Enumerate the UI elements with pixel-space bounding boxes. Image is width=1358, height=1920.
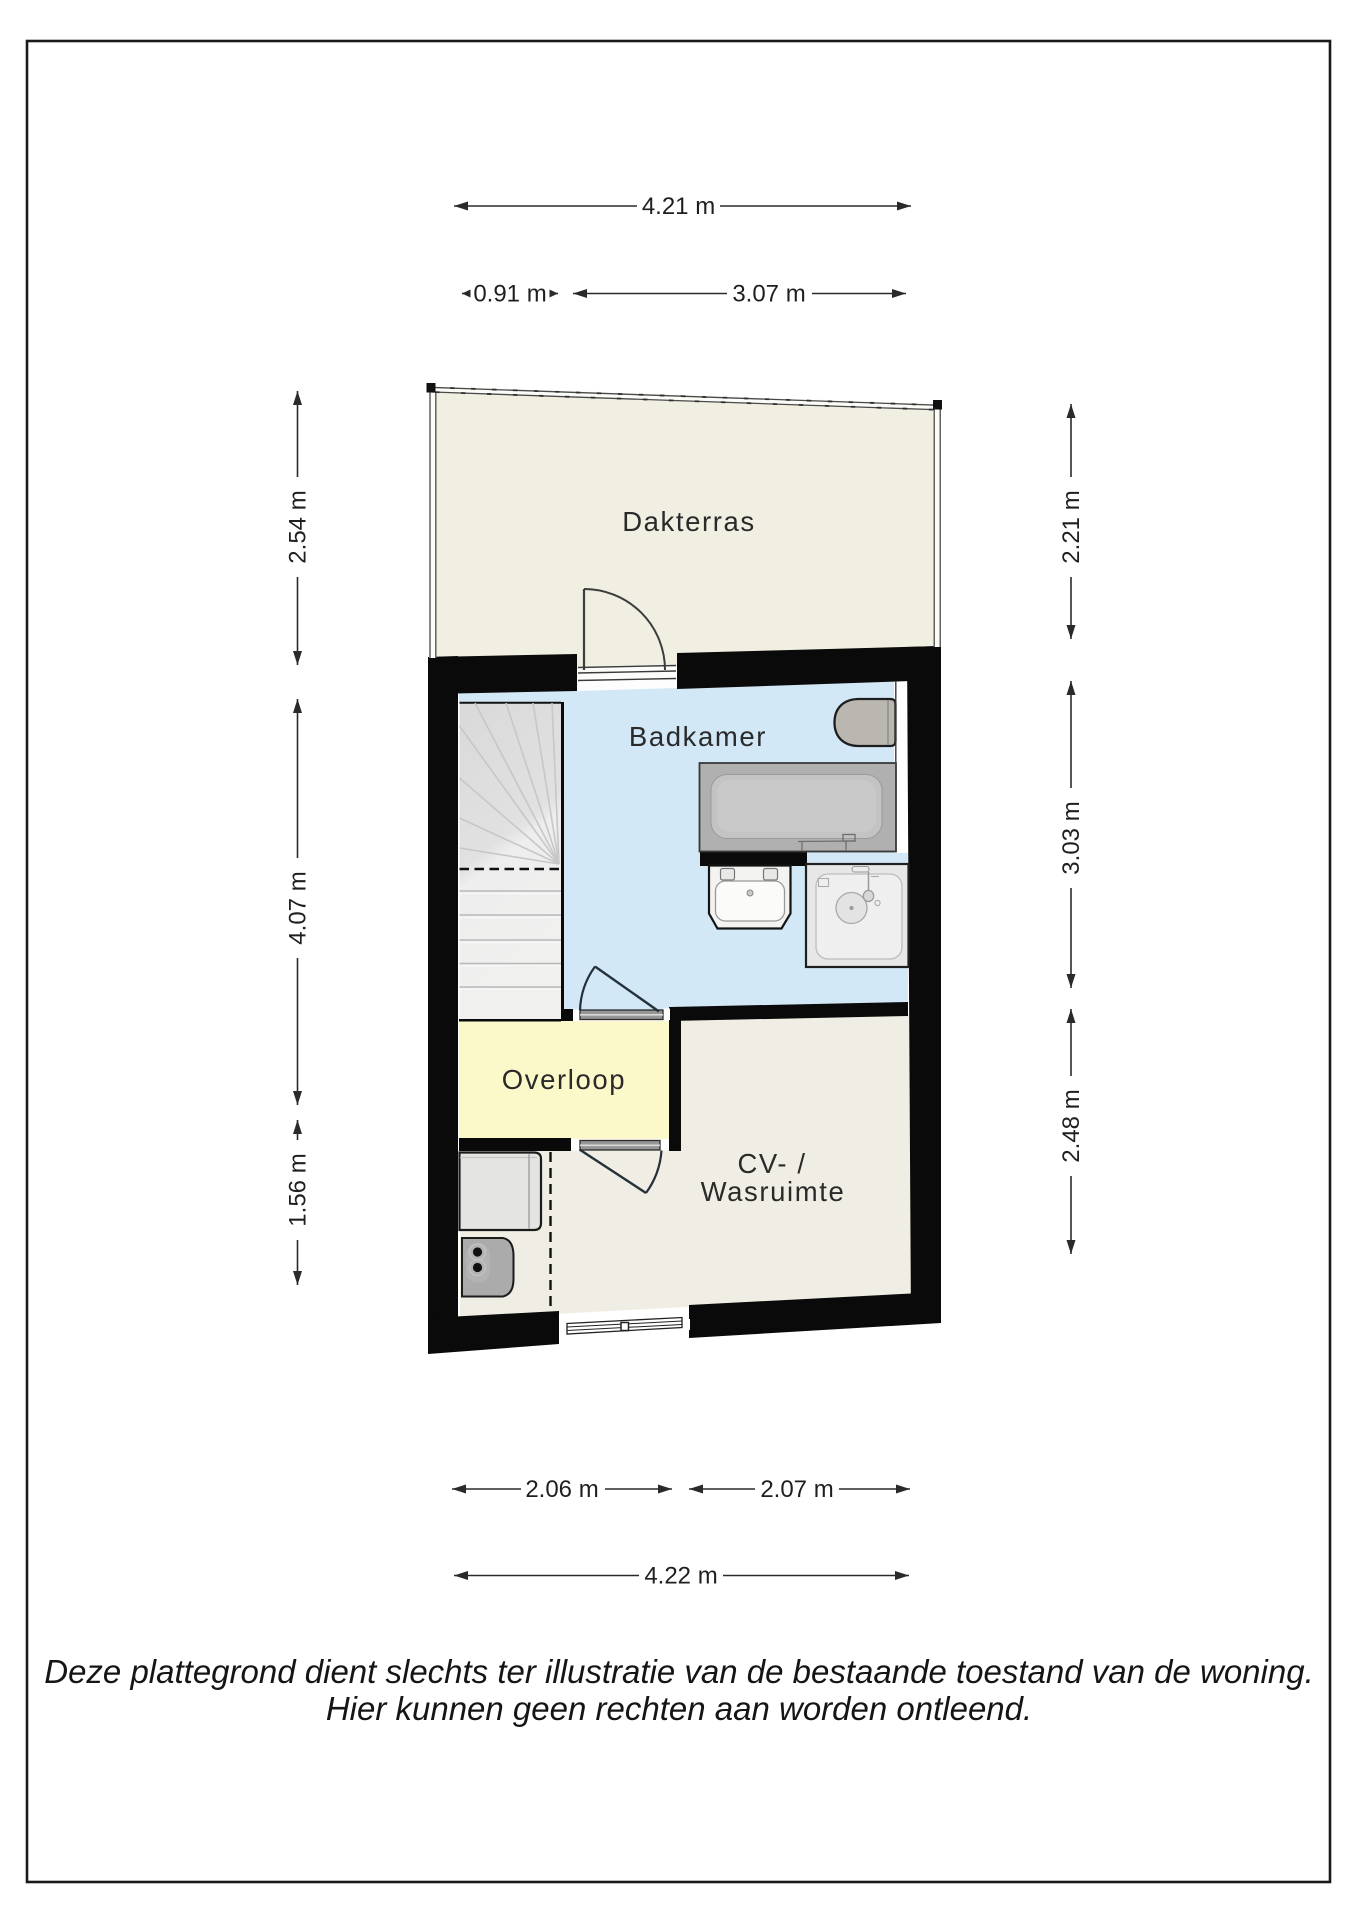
- svg-text:Overloop: Overloop: [502, 1064, 626, 1095]
- svg-text:Badkamer: Badkamer: [629, 721, 767, 752]
- svg-text:1.56 m: 1.56 m: [285, 1153, 312, 1226]
- svg-text:2.21 m: 2.21 m: [1058, 490, 1085, 563]
- svg-text:CV- /: CV- /: [737, 1148, 806, 1179]
- svg-text:Deze plattegrond dient slechts: Deze plattegrond dient slechts ter illus…: [44, 1653, 1314, 1690]
- svg-text:Wasruimte: Wasruimte: [701, 1176, 846, 1207]
- svg-text:2.06 m: 2.06 m: [525, 1476, 598, 1503]
- svg-text:Hier kunnen geen rechten aan w: Hier kunnen geen rechten aan worden ontl…: [326, 1690, 1032, 1727]
- svg-text:4.22 m: 4.22 m: [644, 1563, 717, 1590]
- svg-text:3.07 m: 3.07 m: [732, 281, 805, 308]
- svg-text:2.07 m: 2.07 m: [760, 1476, 833, 1503]
- svg-text:Dakterras: Dakterras: [622, 506, 756, 537]
- svg-text:0.91 m: 0.91 m: [473, 281, 546, 308]
- svg-text:4.21 m: 4.21 m: [642, 193, 715, 220]
- svg-text:2.48 m: 2.48 m: [1058, 1089, 1085, 1162]
- svg-text:3.03 m: 3.03 m: [1058, 801, 1085, 874]
- svg-text:4.07 m: 4.07 m: [285, 871, 312, 944]
- svg-text:2.54 m: 2.54 m: [285, 490, 312, 563]
